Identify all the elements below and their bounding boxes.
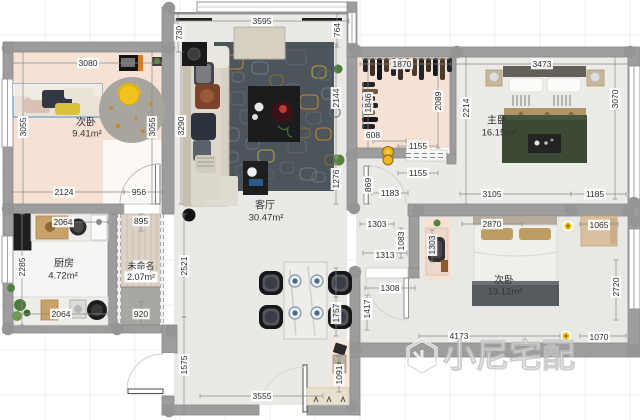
svg-text:1308: 1308 (381, 283, 400, 293)
svg-text:13.12m²: 13.12m² (488, 287, 523, 298)
svg-text:2124: 2124 (55, 187, 74, 197)
svg-text:16.15m²: 16.15m² (482, 128, 517, 139)
svg-text:3080: 3080 (79, 58, 98, 68)
svg-text:3070: 3070 (610, 89, 620, 108)
svg-text:1313: 1313 (376, 250, 395, 260)
svg-text:1303: 1303 (368, 219, 387, 229)
svg-text:956: 956 (132, 187, 146, 197)
svg-text:1070: 1070 (590, 332, 609, 342)
svg-text:730: 730 (174, 26, 184, 40)
svg-text:小尼宅配: 小尼宅配 (443, 337, 575, 374)
svg-text:608: 608 (366, 130, 380, 140)
svg-text:客厅: 客厅 (255, 199, 275, 212)
svg-text:1155: 1155 (409, 141, 428, 151)
svg-text:3055: 3055 (18, 117, 28, 136)
svg-text:2521: 2521 (179, 256, 189, 275)
svg-text:2214: 2214 (461, 98, 471, 117)
svg-text:1417: 1417 (362, 299, 372, 318)
svg-text:1091: 1091 (334, 365, 344, 384)
svg-text:1185: 1185 (586, 189, 605, 199)
svg-text:主卧: 主卧 (487, 114, 507, 127)
svg-text:厨房: 厨房 (54, 257, 74, 270)
svg-text:2064: 2064 (52, 309, 71, 319)
svg-text:1183: 1183 (381, 188, 400, 198)
svg-text:3290: 3290 (176, 116, 186, 135)
svg-text:1083: 1083 (396, 231, 406, 250)
svg-text:1575: 1575 (179, 355, 189, 374)
svg-text:2144: 2144 (331, 88, 341, 107)
svg-text:4.72m²: 4.72m² (48, 271, 78, 282)
svg-text:869: 869 (363, 178, 373, 192)
svg-text:920: 920 (134, 309, 148, 319)
svg-text:1757: 1757 (331, 303, 341, 322)
svg-text:895: 895 (134, 216, 148, 226)
svg-text:3105: 3105 (483, 189, 502, 199)
svg-text:2720: 2720 (611, 277, 621, 296)
svg-text:1870: 1870 (393, 59, 412, 69)
svg-text:1065: 1065 (590, 220, 609, 230)
svg-text:1846: 1846 (363, 93, 373, 112)
svg-text:2870: 2870 (483, 219, 502, 229)
svg-text:3473: 3473 (533, 59, 552, 69)
svg-text:2285: 2285 (17, 257, 27, 276)
svg-text:3055: 3055 (147, 117, 157, 136)
svg-text:764: 764 (332, 23, 342, 37)
svg-text:3555: 3555 (253, 391, 272, 401)
svg-text:2089: 2089 (433, 91, 443, 110)
svg-text:1276: 1276 (331, 169, 341, 188)
svg-text:1303: 1303 (427, 235, 437, 254)
svg-text:次卧: 次卧 (76, 116, 96, 129)
svg-text:次卧: 次卧 (494, 274, 514, 287)
svg-text:2.07m²: 2.07m² (127, 272, 155, 282)
svg-text:1155: 1155 (409, 168, 428, 178)
svg-text:2064: 2064 (54, 217, 73, 227)
svg-text:未命名: 未命名 (127, 260, 154, 271)
svg-text:30.47m²: 30.47m² (249, 213, 284, 224)
svg-text:9.41m²: 9.41m² (72, 129, 102, 140)
svg-text:3595: 3595 (253, 16, 272, 26)
